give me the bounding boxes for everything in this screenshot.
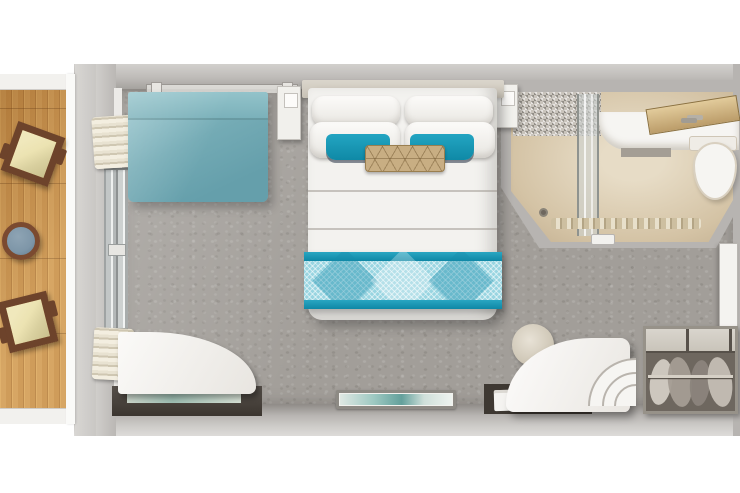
floor-drain bbox=[539, 208, 548, 217]
decorative-pillow bbox=[365, 145, 445, 172]
entry-door bbox=[719, 243, 738, 333]
sofa bbox=[128, 92, 268, 202]
bathroom bbox=[501, 76, 740, 246]
bathroom-door bbox=[591, 234, 615, 245]
balcony-table bbox=[2, 222, 40, 260]
hanging-clothes bbox=[705, 356, 736, 409]
vanity-shadow bbox=[621, 148, 671, 157]
bath-mat bbox=[551, 218, 701, 229]
balcony-railing-top bbox=[0, 74, 68, 90]
stateroom-floorplan bbox=[0, 0, 740, 493]
runner-diamond bbox=[312, 252, 377, 309]
faucet bbox=[681, 118, 697, 123]
tv-artwork-frame bbox=[336, 390, 456, 409]
duvet-seam bbox=[308, 190, 497, 192]
tv-artwork bbox=[339, 393, 453, 406]
nightstand-left bbox=[277, 86, 301, 140]
balcony-partition bbox=[66, 74, 75, 424]
wardrobe-shelf bbox=[646, 329, 735, 353]
duvet-seam bbox=[308, 228, 497, 230]
shower-door bbox=[577, 94, 599, 236]
wardrobe bbox=[643, 326, 738, 414]
runner-diamond bbox=[370, 252, 435, 309]
balcony-railing-bottom bbox=[0, 408, 68, 424]
runner-diamond bbox=[428, 252, 493, 309]
clothes-rail bbox=[648, 375, 733, 378]
sliding-glass-door bbox=[104, 168, 128, 330]
bed-runner bbox=[304, 252, 502, 309]
curved-chair-slats bbox=[574, 344, 636, 406]
